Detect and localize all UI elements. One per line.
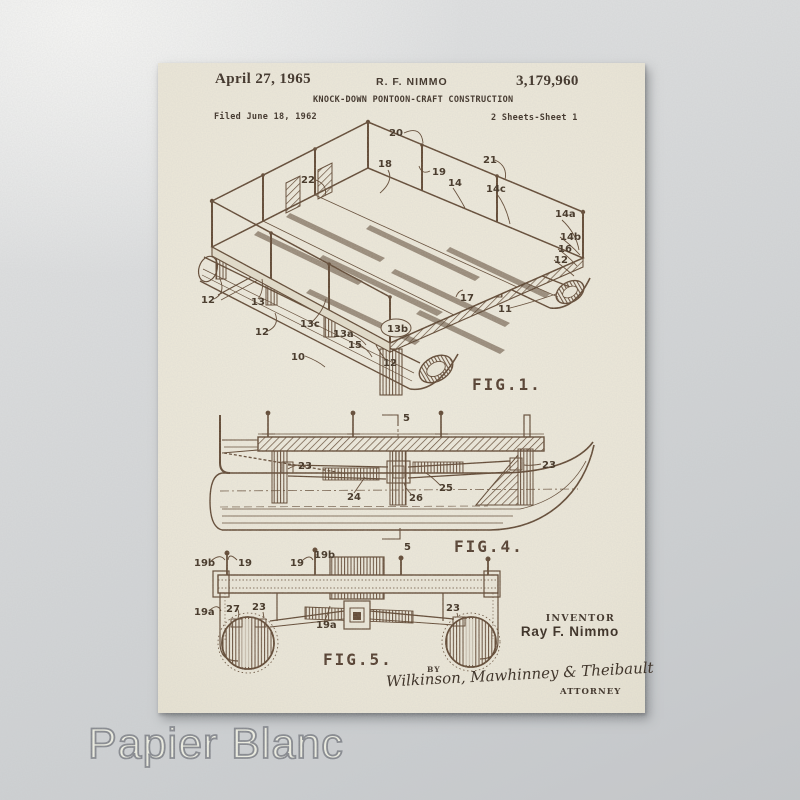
fig4-caption: FIG.4. xyxy=(454,537,524,556)
part-label: 15 xyxy=(348,340,362,351)
fig4-deck xyxy=(258,411,544,451)
part-label: 23 xyxy=(252,602,266,613)
part-label: 19b xyxy=(314,550,335,561)
fig4-truss xyxy=(272,449,533,505)
part-label: 13c xyxy=(300,319,320,330)
part-label: 21 xyxy=(483,155,497,166)
part-label: 5 xyxy=(404,542,411,553)
fig4-posts xyxy=(262,411,448,437)
part-label: 25 xyxy=(439,483,453,494)
product-photo-scene: April 27, 1965 R. F. NIMMO 3,179,960 KNO… xyxy=(0,0,800,800)
part-label: 20 xyxy=(389,128,403,139)
part-label: 14c xyxy=(486,184,506,195)
part-label: 12 xyxy=(554,255,568,266)
part-label: 26 xyxy=(409,493,423,504)
part-label: 12 xyxy=(383,358,397,369)
part-label: 24 xyxy=(347,492,361,503)
part-label: 12 xyxy=(201,295,215,306)
part-label: 14a xyxy=(555,209,576,220)
fig5-beam xyxy=(213,571,500,597)
part-label: 23 xyxy=(298,461,312,472)
part-label: 23 xyxy=(542,460,556,471)
part-label: 22 xyxy=(301,175,315,186)
fig1-caption: FIG.1. xyxy=(472,375,542,394)
part-label: 5 xyxy=(403,413,410,424)
part-label: 14b xyxy=(560,232,581,243)
part-label: 19 xyxy=(432,167,446,178)
part-label: 16 xyxy=(558,244,572,255)
inventor-label: INVENTOR xyxy=(546,613,615,624)
part-label: 13b xyxy=(387,324,408,335)
figure-5-end-view: 19b 19 19 19b 19a 27 23 19a 23 FIG.5. xyxy=(194,548,500,673)
part-label: 23 xyxy=(446,603,460,614)
part-label: 19b xyxy=(194,558,215,569)
part-label: 11 xyxy=(498,304,512,315)
part-label: 19 xyxy=(290,558,304,569)
part-label: 14 xyxy=(448,178,462,189)
part-label: 19a xyxy=(194,607,215,618)
attorney-label: ATTORNEY xyxy=(560,687,621,697)
part-label: 18 xyxy=(378,159,392,170)
figure-1-perspective-view: 20 22 18 19 21 14 14c 14a 14b 16 12 11 1… xyxy=(195,120,590,395)
part-label: 27 xyxy=(226,604,240,615)
part-label: 10 xyxy=(291,352,305,363)
part-label: 13 xyxy=(251,297,265,308)
part-label: 19a xyxy=(316,620,337,631)
figure-4-side-section: 5 23 23 24 25 26 5 FIG.4. xyxy=(210,411,594,556)
watermark-papier-blanc: Papier Blanc xyxy=(88,720,344,769)
part-label: 12 xyxy=(255,327,269,338)
fig5-caption: FIG.5. xyxy=(323,650,393,669)
part-label: 13a xyxy=(333,329,354,340)
patent-print-paper: April 27, 1965 R. F. NIMMO 3,179,960 KNO… xyxy=(158,63,645,713)
inventor-name: Ray F. Nimmo xyxy=(521,624,619,639)
fig5-center-mechanism xyxy=(231,601,465,629)
part-label: 17 xyxy=(460,293,474,304)
part-label: 19 xyxy=(238,558,252,569)
